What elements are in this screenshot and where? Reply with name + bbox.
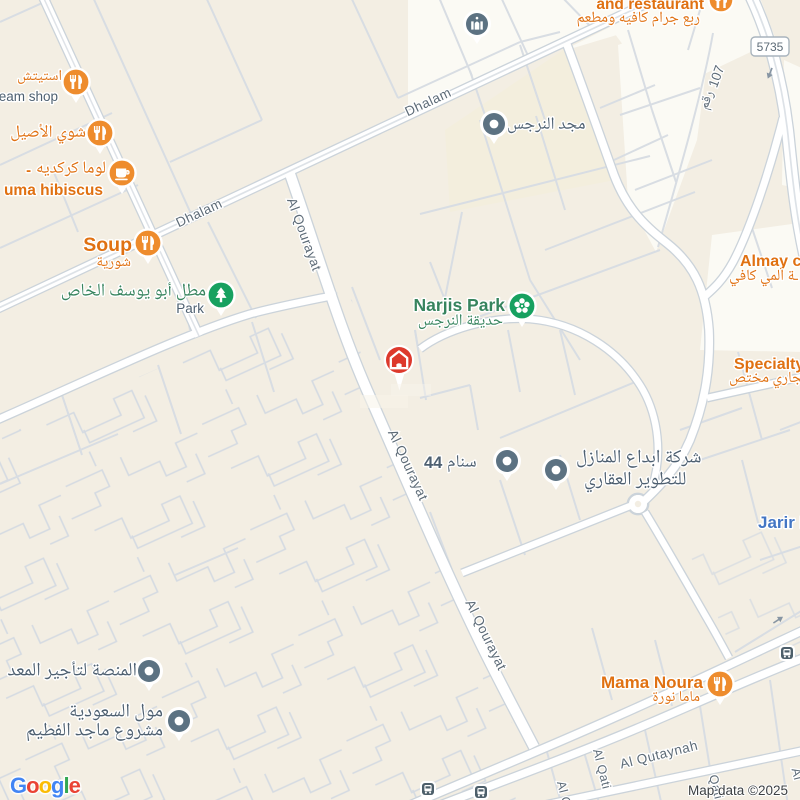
svg-text:5735: 5735 bbox=[757, 40, 784, 54]
svg-text:eam shop: eam shop bbox=[0, 89, 58, 104]
svg-text:and restaurant: and restaurant bbox=[596, 0, 704, 13]
svg-text:44: 44 bbox=[424, 454, 443, 472]
svg-text:Narjis Park: Narjis Park bbox=[414, 295, 506, 315]
svg-text:Map data ©2025: Map data ©2025 bbox=[688, 783, 788, 798]
svg-text:Mama Noura: Mama Noura bbox=[601, 673, 704, 692]
svg-text:Jarir B: Jarir B bbox=[758, 513, 800, 532]
svg-text:Soup: Soup bbox=[83, 234, 132, 256]
svg-text:Google: Google bbox=[10, 773, 81, 798]
svg-text:-: - bbox=[26, 162, 31, 179]
svg-text:Park: Park bbox=[176, 301, 204, 316]
svg-text:Almay c: Almay c bbox=[740, 253, 800, 270]
svg-text:uma hibiscus: uma hibiscus bbox=[4, 182, 103, 199]
